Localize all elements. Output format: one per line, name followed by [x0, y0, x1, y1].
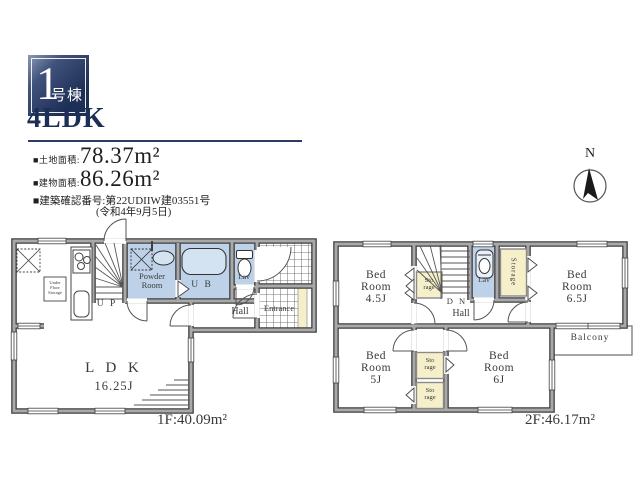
label-bedroom-5: BedRoom5J	[361, 350, 391, 386]
floor-plan-graphics	[0, 0, 640, 480]
bathtub-icon	[182, 249, 226, 275]
basin-icon	[153, 251, 174, 265]
floor1-area-label: 1F:40.09m²	[157, 413, 227, 429]
approval-date: (令和4年9月5日)	[96, 204, 171, 219]
floor2-area-label: 2F:46.17m²	[525, 413, 595, 429]
building-area-value: 86.26m²	[80, 166, 160, 192]
label-balcony: Balcony	[571, 334, 610, 344]
shoe-cabinet	[298, 287, 307, 329]
label-storage-mid2: Storage	[424, 388, 435, 402]
label-stairs-down: D N	[447, 297, 467, 306]
label-ldk-size: 16.25J	[95, 380, 134, 393]
land-area-label: ■土地面積:	[33, 153, 80, 166]
label-hall-1f: Hall	[231, 307, 248, 318]
label-bedroom-45: BedRoom4.5J	[361, 269, 391, 305]
title-underline	[28, 140, 302, 142]
label-stairs-up: U P	[97, 300, 118, 310]
floor2-plan	[333, 241, 632, 413]
label-lav-1f: Lav	[238, 273, 250, 281]
label-storage-mid1: Storage	[424, 358, 435, 372]
label-lav-2f: Lav	[478, 276, 490, 284]
kitchen-sink-icon	[74, 291, 89, 317]
approval-label: ■建築確認番号:	[33, 193, 105, 208]
label-ldk: L D K	[85, 361, 143, 377]
label-storage-upper: Storage	[423, 278, 434, 292]
floor-plan-flyer: { "colors": { "accent_navy": "#1d2f55", …	[0, 0, 640, 480]
label-bedroom-6: BedRoom6J	[484, 350, 514, 386]
label-hall-2f: Hall	[452, 309, 469, 320]
compass-north-label: N	[585, 146, 595, 162]
label-unit-bath: U B	[191, 281, 213, 291]
floor1-plan	[11, 219, 314, 414]
label-under-floor-storage: Under Floor Storage	[48, 280, 62, 296]
label-powder-room: Powder Room	[139, 272, 165, 290]
label-entrance: Entrance	[264, 304, 294, 313]
label-bedroom-65: BedRoom6.5J	[562, 269, 592, 305]
badge-suffix: 号棟	[51, 84, 83, 105]
building-area-label: ■建物面積:	[33, 176, 80, 189]
label-storage-vertical: Storage	[509, 258, 516, 286]
plan-type: 4LDK	[27, 103, 106, 135]
building-area-row: ■建物面積: 86.26m²	[33, 166, 160, 192]
toilet-icon-2f	[476, 250, 493, 278]
compass-icon	[574, 168, 606, 202]
